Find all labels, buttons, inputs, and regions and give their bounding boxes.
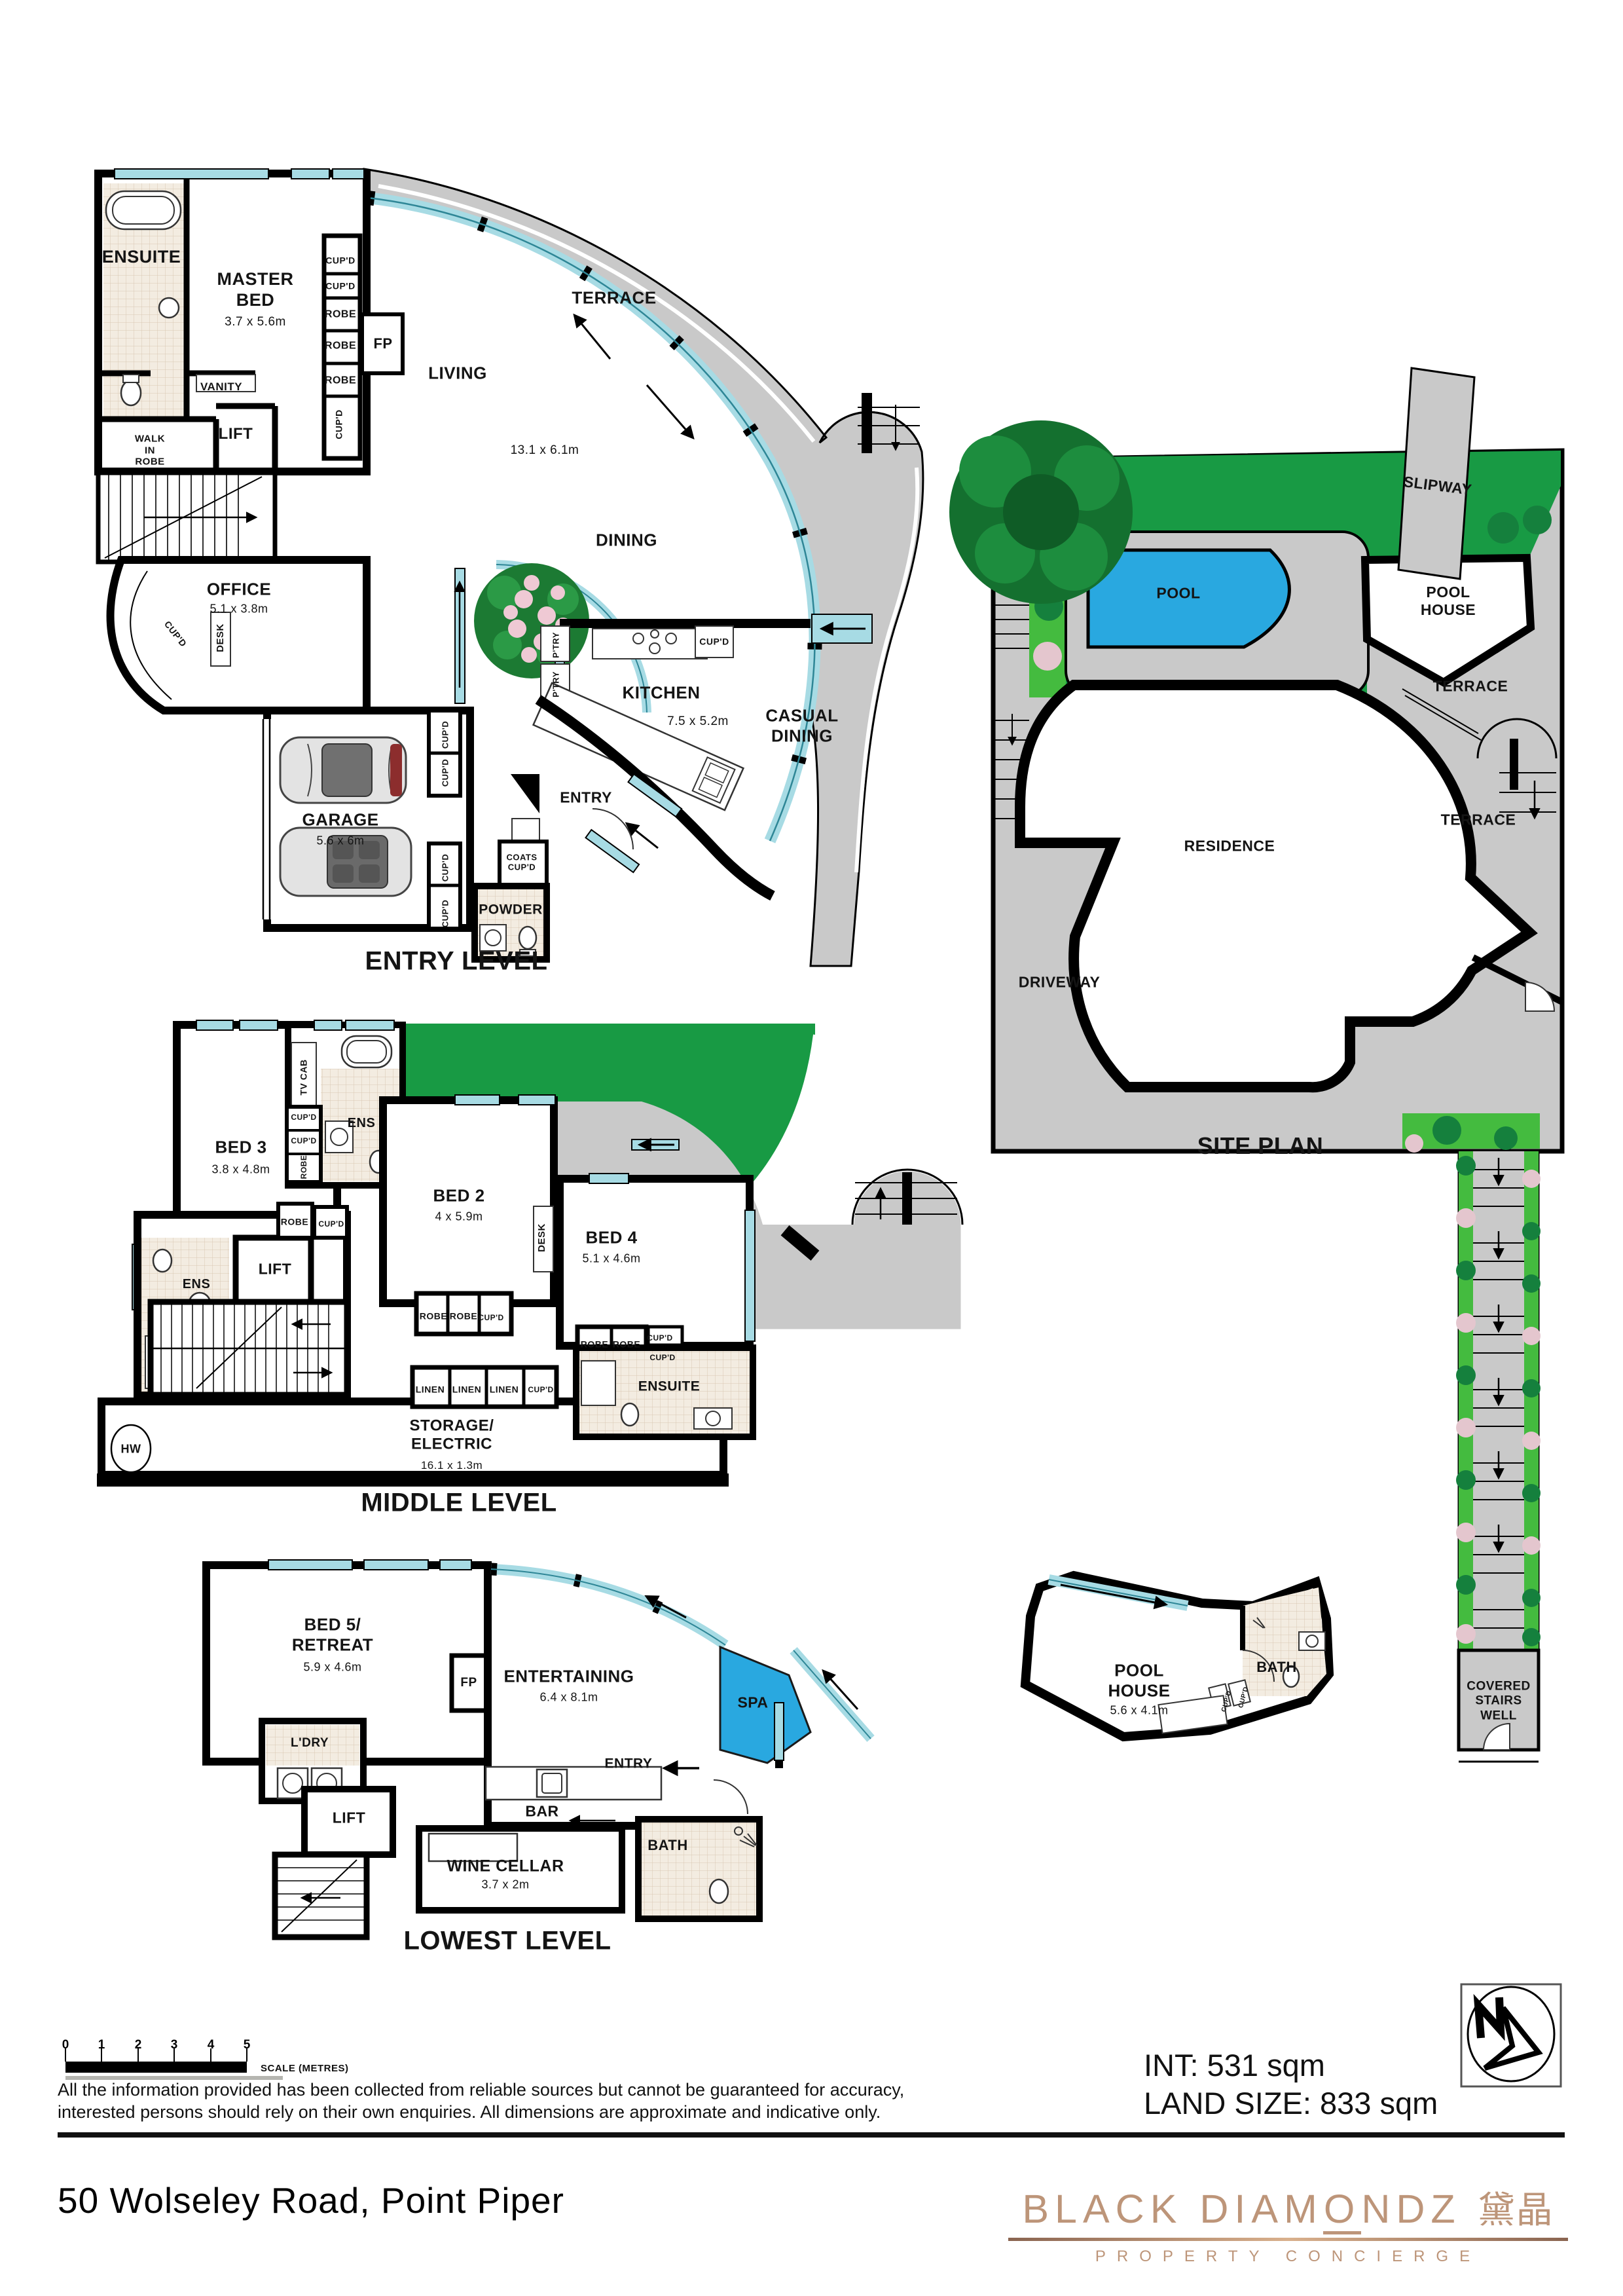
label-linen: LINEN xyxy=(452,1384,482,1396)
divider-rule xyxy=(58,2132,1565,2138)
label-cup-d: CUP'D xyxy=(325,255,356,267)
label-cup-d: CUP'D xyxy=(440,854,450,881)
label-ens: ENS xyxy=(348,1116,376,1132)
label-driveway: DRIVEWAY xyxy=(1019,973,1101,991)
label-site-plan: SITE PLAN xyxy=(1197,1132,1324,1160)
bed5-windows xyxy=(268,1560,471,1570)
label-robe: ROBE xyxy=(325,309,356,322)
scale-tick: 1 xyxy=(98,2038,105,2052)
label-storage-electric: STORAGE/ ELECTRIC xyxy=(410,1417,494,1454)
cooktop-bench xyxy=(593,629,707,659)
label-7-5-x-5-2m: 7.5 x 5.2m xyxy=(667,714,729,729)
scale-metres-label: SCALE (METRES) xyxy=(261,2063,349,2074)
label-cup-d: CUP'D xyxy=(699,637,729,648)
scale-tick: 5 xyxy=(244,2038,251,2052)
brand-name: BLACK DIAMONDZ 黛晶 xyxy=(1008,2181,1568,2234)
label-cup-d: CUP'D xyxy=(528,1385,553,1394)
label-robe: ROBE xyxy=(325,341,356,353)
shower xyxy=(581,1361,615,1405)
label-cup-d: CUP'D xyxy=(325,281,356,292)
label-6-4-x-8-1m: 6.4 x 8.1m xyxy=(539,1690,598,1704)
tree-icon xyxy=(949,420,1133,604)
label-powder: POWDER xyxy=(479,902,543,919)
label-lift: LIFT xyxy=(333,1809,366,1826)
car-icon xyxy=(280,737,406,803)
label-entry: ENTRY xyxy=(560,788,612,806)
label-spa: SPA xyxy=(737,1694,768,1711)
label-terrace: TERRACE xyxy=(1441,811,1516,828)
covered-stairs-area xyxy=(1456,1151,1541,1762)
scale-tick: 4 xyxy=(208,2038,215,2052)
label-pool: POOL xyxy=(1156,584,1200,602)
toilet-icon xyxy=(153,1250,172,1272)
entry-hall-stairs xyxy=(98,473,275,562)
label-robe: ROBE xyxy=(420,1311,447,1322)
label-coats-cup-d: COATS CUP'D xyxy=(506,853,537,873)
label-robe: ROBE xyxy=(325,375,356,388)
label-5-1-x-4-6m: 5.1 x 4.6m xyxy=(582,1251,640,1265)
label-bar: BAR xyxy=(525,1802,558,1820)
lowest-stairs xyxy=(275,1855,367,1937)
label-fp: FP xyxy=(373,335,392,352)
label-4-x-5-9m: 4 x 5.9m xyxy=(435,1210,483,1223)
disclaimer-line-2: interested persons should rely on their … xyxy=(58,2102,881,2122)
label-vanity: VANITY xyxy=(200,380,242,394)
site-garden-patch xyxy=(1402,1113,1540,1153)
label-robe: ROBE xyxy=(281,1217,308,1228)
label-cup-d: CUP'D xyxy=(647,1333,672,1342)
label-covered-stairs-well: COVERED STAIRS WELL xyxy=(1467,1679,1530,1723)
label-living: LIVING xyxy=(428,363,487,384)
label-5-6-x-6m: 5.6 x 6m xyxy=(316,834,364,847)
scale-tick: 3 xyxy=(171,2038,178,2052)
label-fp: FP xyxy=(460,1676,477,1690)
label-cup-d: CUP'D xyxy=(440,759,450,787)
label-bed-4: BED 4 xyxy=(585,1228,637,1248)
label-robe: ROBE xyxy=(613,1339,640,1350)
label-cup-d: CUP'D xyxy=(440,900,450,927)
suite-windows xyxy=(115,169,364,179)
brand-tagline: PROPERTY CONCIERGE xyxy=(1008,2248,1568,2266)
label-entry-level: ENTRY LEVEL xyxy=(365,946,548,976)
brand-logo: BLACK DIAMONDZ 黛晶 PROPERTY CONCIERGE xyxy=(1008,2181,1568,2266)
label-dining: DINING xyxy=(596,530,657,551)
label-lift: LIFT xyxy=(219,425,253,443)
label-bath: BATH xyxy=(1256,1659,1296,1676)
label-desk: DESK xyxy=(536,1223,548,1252)
diamond-o-icon: O xyxy=(1323,2187,1361,2234)
label-kitchen: KITCHEN xyxy=(622,683,700,703)
label-entertaining: ENTERTAINING xyxy=(503,1667,634,1687)
label-cup-d: CUP'D xyxy=(318,1219,344,1229)
label-16-1-x-1-3m: 16.1 x 1.3m xyxy=(421,1459,483,1472)
label-3-7-x-2m: 3.7 x 2m xyxy=(481,1878,529,1891)
label-p-try: P'TRY xyxy=(551,671,560,697)
label-robe: ROBE xyxy=(581,1339,608,1350)
label-wine-cellar: WINE CELLAR xyxy=(447,1857,564,1876)
label-robe: ROBE xyxy=(299,1155,308,1179)
label-cup-d: CUP'D xyxy=(334,409,345,439)
label-linen: LINEN xyxy=(490,1384,519,1396)
label-cup-d: CUP'D xyxy=(291,1113,316,1122)
label-terrace: TERRACE xyxy=(1433,677,1508,695)
label-ens: ENS xyxy=(183,1277,211,1293)
label-entry: ENTRY xyxy=(605,1756,653,1773)
label-3-7-x-5-6m: 3.7 x 5.6m xyxy=(225,315,286,329)
label-walk-in-robe: WALK IN ROBE xyxy=(135,433,165,468)
label-3-8-x-4-8m: 3.8 x 4.8m xyxy=(211,1162,270,1176)
floorplan-document: ENSUITEMASTER BED3.7 x 5.6mCUP'DCUP'DROB… xyxy=(0,0,1623,2296)
label-cup-d: CUP'D xyxy=(478,1313,503,1322)
label-garage: GARAGE xyxy=(302,810,378,830)
label-5-1-x-3-8m: 5.1 x 3.8m xyxy=(210,602,268,616)
label-hw: HW xyxy=(121,1442,141,1456)
label-cup-d: CUP'D xyxy=(291,1136,316,1145)
label-5-6-x-4-1m: 5.6 x 4.1m xyxy=(1110,1703,1168,1717)
label-casual-dining: CASUAL DINING xyxy=(765,705,838,745)
label-cup-d: CUP'D xyxy=(649,1353,675,1362)
label-bed-3: BED 3 xyxy=(215,1138,266,1158)
label-bath: BATH xyxy=(647,1837,687,1854)
label-robe: ROBE xyxy=(450,1311,477,1322)
north-compass-icon xyxy=(1461,1984,1561,2086)
label-linen: LINEN xyxy=(416,1384,445,1396)
basin-icon xyxy=(159,298,179,318)
label-lift: LIFT xyxy=(259,1260,292,1278)
label-p-try: P'TRY xyxy=(551,632,560,658)
label-desk: DESK xyxy=(215,623,227,652)
brand-cjk: 黛晶 xyxy=(1478,2189,1554,2231)
label-ensuite: ENSUITE xyxy=(102,247,181,268)
label-bed-2: BED 2 xyxy=(433,1186,484,1206)
brand-rule xyxy=(1008,2238,1568,2241)
scale-tick: 2 xyxy=(135,2038,142,2052)
label-tv-cab: TV CAB xyxy=(299,1059,310,1095)
label-cup-d: CUP'D xyxy=(440,721,450,749)
land-size-value: LAND SIZE: 833 sqm xyxy=(1144,2085,1438,2121)
label-l-dry: L'DRY xyxy=(291,1736,329,1750)
label-ensuite: ENSUITE xyxy=(638,1379,701,1396)
internal-area-value: INT: 531 sqm xyxy=(1144,2047,1325,2083)
label-13-1-x-6-1m: 13.1 x 6.1m xyxy=(511,443,579,458)
label-pool-house: POOL HOUSE xyxy=(1108,1660,1171,1700)
label-residence: RESIDENCE xyxy=(1184,837,1275,855)
toilet-icon xyxy=(121,380,141,405)
label-pool-house: POOL HOUSE xyxy=(1421,583,1476,619)
label-terrace: TERRACE xyxy=(572,288,656,308)
label-5-9-x-4-6m: 5.9 x 4.6m xyxy=(303,1660,361,1674)
middle-stairwell xyxy=(151,1302,347,1395)
label-lowest-level: LOWEST LEVEL xyxy=(403,1925,611,1956)
scale-bar xyxy=(65,2048,283,2080)
label-office: OFFICE xyxy=(207,580,271,600)
label-middle-level: MIDDLE LEVEL xyxy=(361,1487,556,1518)
label-bed-5-retreat: BED 5/ RETREAT xyxy=(292,1614,373,1654)
disclaimer-line-1: All the information provided has been co… xyxy=(58,2080,904,2100)
page-title: 50 Wolseley Road, Point Piper xyxy=(58,2179,564,2221)
pool-house-plan xyxy=(1025,1576,1329,1737)
scale-tick: 0 xyxy=(62,2038,69,2052)
label-master-bed: MASTER BED xyxy=(217,269,294,311)
middle-level-plan xyxy=(97,1020,962,1487)
